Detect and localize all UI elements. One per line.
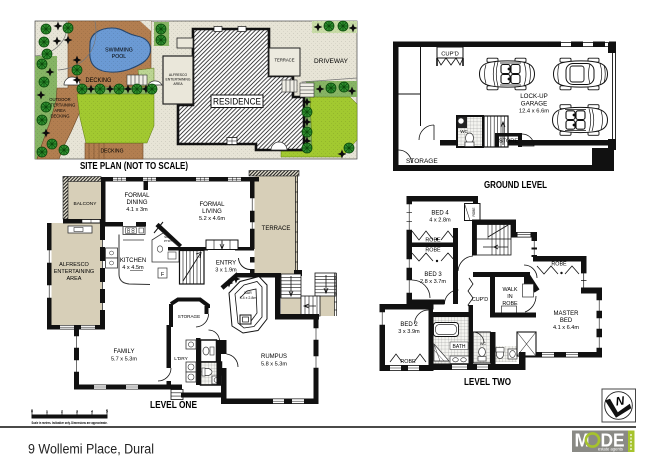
svg-text:4.1 x 6.4m: 4.1 x 6.4m (553, 325, 579, 331)
svg-text:5.2 x 4.6m: 5.2 x 4.6m (199, 216, 225, 222)
svg-text:3 x 1.9m: 3 x 1.9m (215, 268, 237, 274)
svg-text:FAMILY: FAMILY (114, 349, 135, 355)
svg-text:FORMAL: FORMAL (124, 193, 150, 199)
svg-text:SITE PLAN (NOT TO SCALE): SITE PLAN (NOT TO SCALE) (80, 160, 188, 172)
svg-text:CUP'D: CUP'D (472, 297, 488, 303)
svg-text:MASTER: MASTER (553, 311, 579, 317)
svg-text:ROBE: ROBE (400, 359, 416, 365)
svg-text:4.1 x 3m: 4.1 x 3m (126, 207, 148, 213)
svg-text:3.4 x 2.8m: 3.4 x 2.8m (240, 296, 257, 300)
svg-text:WC: WC (460, 129, 468, 134)
svg-text:ALFRESCO: ALFRESCO (169, 73, 188, 77)
svg-text:ENTRY: ENTRY (216, 261, 236, 267)
svg-text:GARAGE: GARAGE (521, 101, 547, 108)
svg-text:FORMAL: FORMAL (199, 202, 225, 208)
svg-text:LIVING: LIVING (202, 209, 222, 215)
svg-text:KITCHEN: KITCHEN (120, 258, 146, 264)
svg-text:3: 3 (76, 409, 79, 414)
svg-text:ENTERTAINING: ENTERTAINING (166, 78, 191, 82)
svg-text:BED 2: BED 2 (400, 322, 418, 328)
svg-text:GROUND LEVEL: GROUND LEVEL (484, 179, 547, 191)
svg-text:5: 5 (106, 409, 109, 414)
svg-text:BED 3: BED 3 (424, 272, 442, 278)
svg-text:LEVEL TWO: LEVEL TWO (464, 376, 511, 388)
svg-text:PTRY: PTRY (164, 239, 172, 243)
svg-text:LOCK-UP: LOCK-UP (520, 93, 548, 100)
svg-text:TERRACE: TERRACE (262, 226, 291, 232)
svg-text:STORE: STORE (499, 139, 518, 145)
svg-text:9 Wollemi Place, Dural: 9 Wollemi Place, Dural (28, 442, 154, 457)
svg-text:LEVEL ONE: LEVEL ONE (150, 399, 197, 411)
svg-text:CUP'D: CUP'D (441, 52, 459, 58)
svg-text:WC: WC (480, 342, 486, 346)
svg-text:M: M (575, 431, 590, 451)
svg-text:AREA: AREA (67, 276, 82, 282)
svg-text:0: 0 (31, 409, 34, 414)
svg-text:L'DRY: L'DRY (174, 356, 188, 362)
svg-text:1: 1 (46, 409, 49, 414)
svg-text:TERRACE: TERRACE (274, 58, 294, 63)
svg-text:ENTERTAINING: ENTERTAINING (54, 269, 94, 275)
svg-text:4 x 2.8m: 4 x 2.8m (429, 218, 451, 224)
svg-text:3 x 3.9m: 3 x 3.9m (398, 329, 420, 335)
svg-text:BAR: BAR (244, 291, 252, 295)
svg-text:5.7 x 5.3m: 5.7 x 5.3m (111, 357, 137, 363)
svg-text:ALFRESCO: ALFRESCO (59, 262, 89, 268)
svg-text:WALK: WALK (502, 287, 517, 293)
svg-text:5.8 x 5.3m: 5.8 x 5.3m (261, 362, 287, 368)
svg-text:RESIDENCE: RESIDENCE (213, 97, 261, 108)
svg-text:ROBE: ROBE (472, 207, 476, 216)
svg-text:BED 4: BED 4 (431, 211, 449, 217)
svg-text:4: 4 (91, 409, 94, 414)
svg-text:STORAGE: STORAGE (406, 158, 438, 165)
svg-text:ROBE: ROBE (551, 262, 567, 268)
svg-text:RUMPUS: RUMPUS (261, 354, 287, 360)
svg-text:STORAGE: STORAGE (178, 314, 200, 319)
svg-text:IN: IN (507, 294, 512, 300)
svg-text:BALCONY: BALCONY (74, 201, 98, 207)
svg-text:DINING: DINING (127, 200, 148, 206)
svg-text:12.4 x 6.6m: 12.4 x 6.6m (519, 109, 549, 115)
svg-text:2: 2 (61, 409, 64, 414)
svg-text:BATH: BATH (453, 344, 466, 350)
svg-text:AREA: AREA (173, 82, 183, 86)
svg-text:BED: BED (560, 318, 573, 324)
svg-text:ROBE: ROBE (425, 248, 441, 254)
svg-text:Scale in metres. Indicative on: Scale in metres. Indicative only. Dimens… (32, 421, 108, 425)
svg-text:estate agents: estate agents (598, 447, 624, 452)
